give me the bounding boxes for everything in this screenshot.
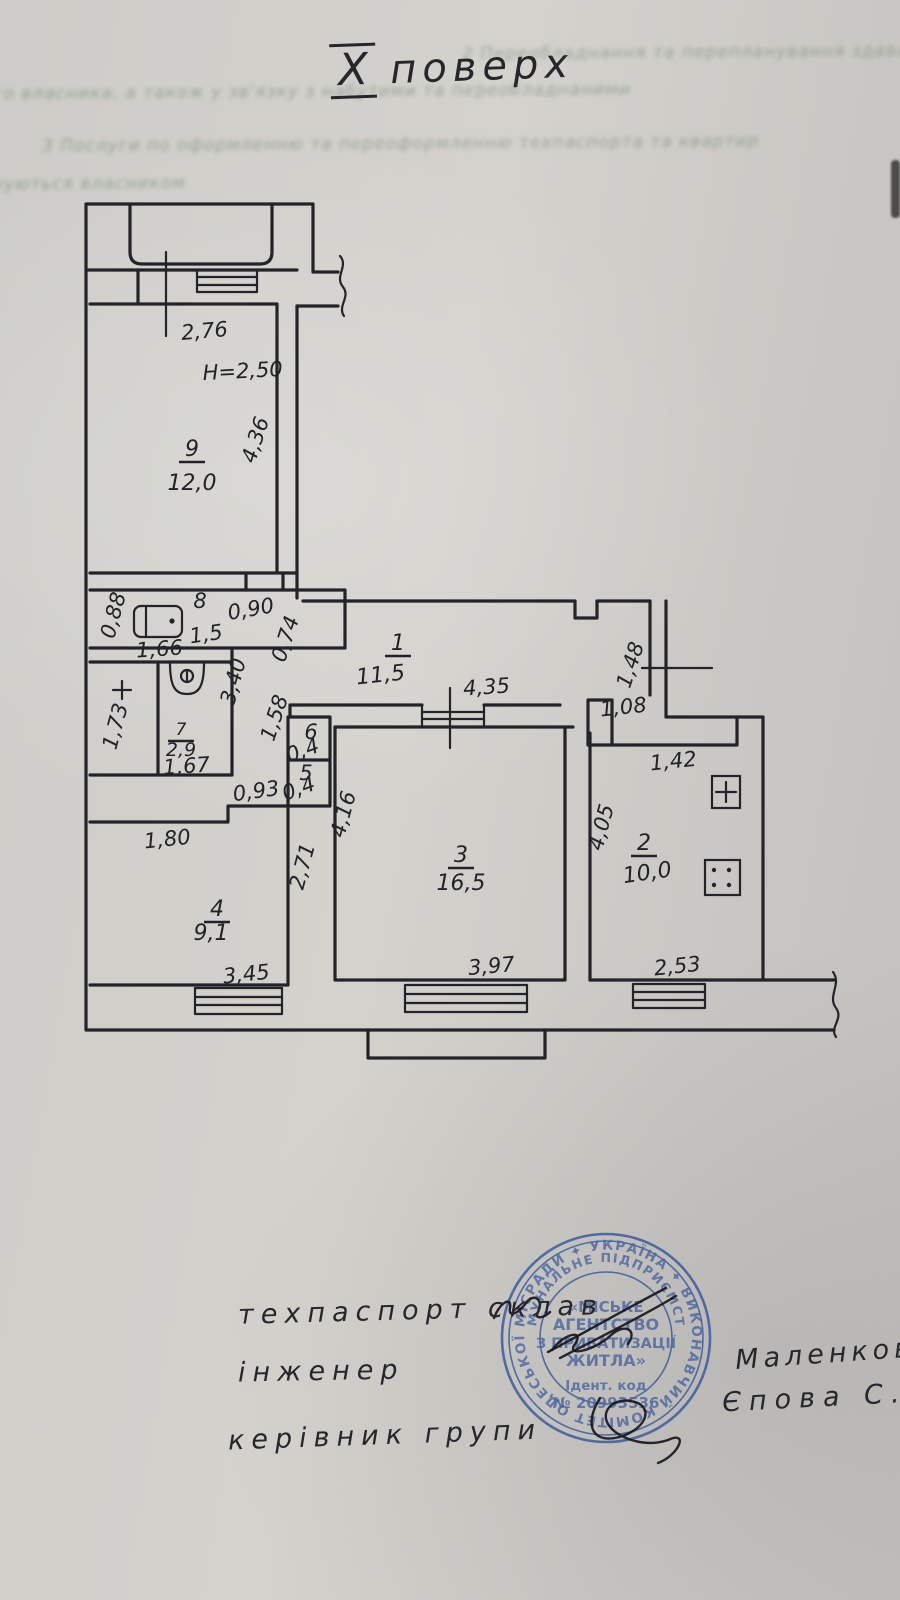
footer-line-engineer: інженер <box>238 1355 405 1389</box>
room-label: 111,5 <box>355 631 411 690</box>
room-label: 316,5 <box>437 843 486 896</box>
plan-labels: 2,76H=2,504,360,881,6681,50,900,743,401,… <box>96 317 702 988</box>
wall-break-squiggle <box>833 972 838 1037</box>
room-number: 9 <box>185 437 199 462</box>
room-number: 1 <box>391 631 405 656</box>
room-area: 11,5 <box>355 660 406 690</box>
dimension-label: 4,36 <box>237 414 274 466</box>
dimension-label: 1,80 <box>143 825 192 854</box>
bathtub-icon <box>134 606 182 637</box>
stamp-ident-label: Ідент. код <box>565 1378 646 1394</box>
stamp-inner-ring-text: КОМУНАЛЬНЕ ПІДПРИЄМСТВО <box>0 0 688 1328</box>
dimension-label: H=2,50 <box>202 357 283 385</box>
wc-sink-icon <box>113 681 131 699</box>
stamp-center-line: ЖИТЛА» <box>566 1351 646 1370</box>
room-number: 4 <box>210 897 224 922</box>
room-label: 912,0 <box>168 437 217 496</box>
dimension-label: 1,42 <box>649 747 698 776</box>
room-area: 2,9 <box>166 739 196 761</box>
dimension-label: 2,53 <box>653 952 702 981</box>
dimension-label: 0,88 <box>96 589 131 640</box>
dimension-label: 1,73 <box>98 700 133 751</box>
room-number: 3 <box>454 843 468 868</box>
room-label: 72,9 <box>166 720 196 761</box>
wall-break-squiggle <box>340 256 346 316</box>
dimension-label: 8 <box>193 589 206 613</box>
dimension-label: 1,5 <box>188 620 224 648</box>
dimension-label: 3,45 <box>222 960 271 989</box>
toilet-icon <box>170 663 204 694</box>
room-number: 2 <box>637 831 651 856</box>
room-label: 49,1 <box>194 897 231 946</box>
dimension-label: 2,76 <box>180 317 229 345</box>
dimension-label: 4,35 <box>462 673 510 700</box>
room-area: 9,1 <box>194 921 229 946</box>
dimension-label: 1,48 <box>612 639 649 691</box>
room-label: 210,0 <box>621 831 673 889</box>
dimension-label: 1,08 <box>599 693 648 722</box>
room-area: 16,5 <box>437 871 486 896</box>
dimension-label: 1,66 <box>135 635 183 662</box>
dimension-label: 0,93 <box>231 776 281 806</box>
dimension-label: 0,90 <box>226 593 276 625</box>
kitchen-sink-icon <box>712 776 740 808</box>
stove-icon <box>705 860 740 895</box>
room-area: 12,0 <box>168 471 217 496</box>
dimension-label: 2,71 <box>285 840 320 891</box>
dimension-label: 3,97 <box>467 952 516 980</box>
photographed-techpassport-page: 2 Переобладнання та перепланування здава… <box>0 0 900 1600</box>
dimension-label: 0,74 <box>267 613 304 665</box>
room-number: 7 <box>176 720 187 740</box>
room-area: 10,0 <box>621 857 673 889</box>
